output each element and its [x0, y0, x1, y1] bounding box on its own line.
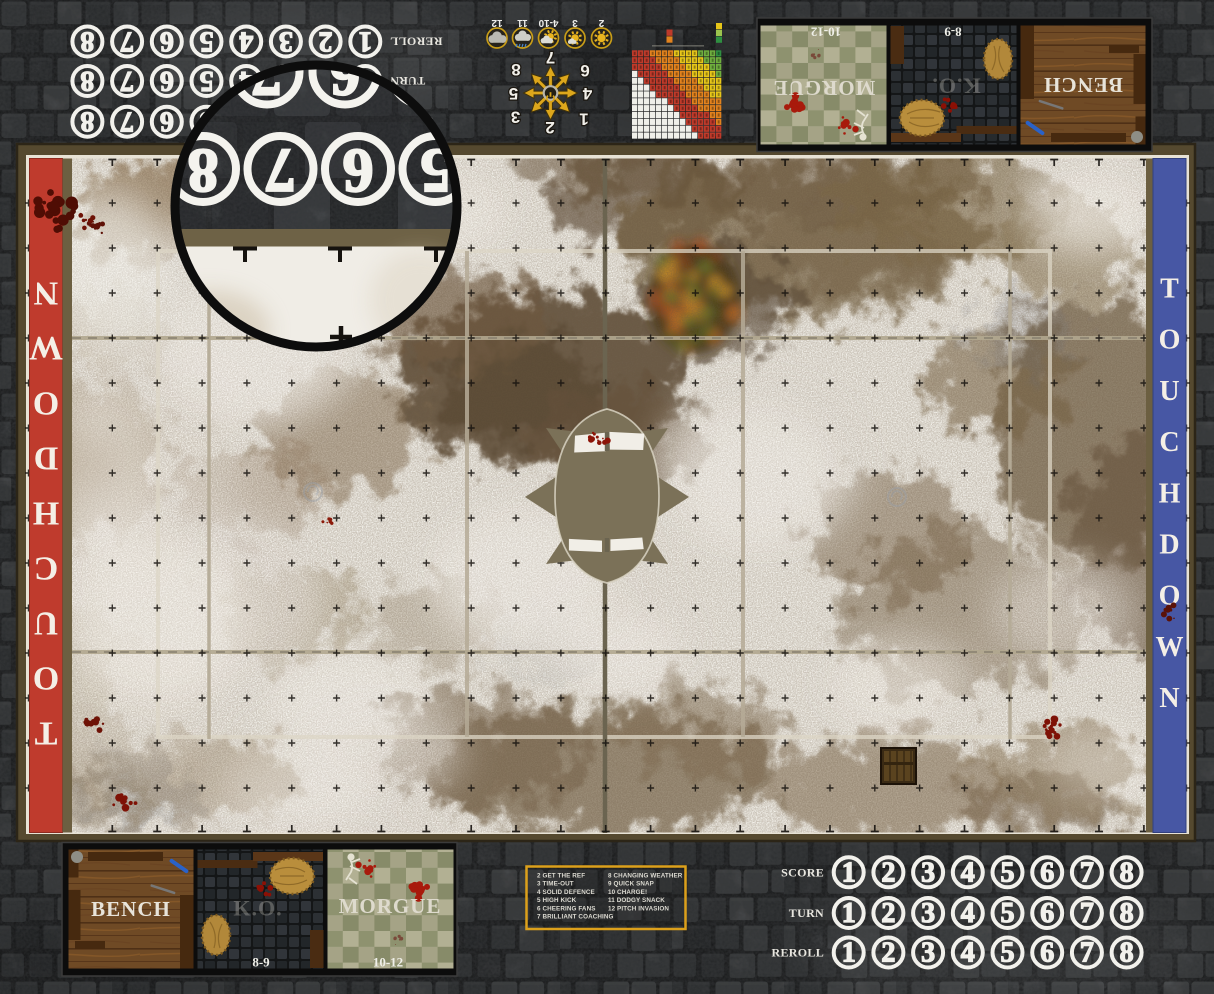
svg-text:3: 3 [921, 857, 935, 888]
svg-text:12 PITCH INVASION: 12 PITCH INVASION [608, 905, 669, 912]
svg-text:7: 7 [1080, 938, 1094, 969]
svg-text:N: N [1159, 683, 1179, 714]
svg-text:1: 1 [842, 857, 856, 888]
svg-text:6: 6 [343, 136, 374, 204]
svg-text:BENCH: BENCH [91, 897, 171, 921]
svg-text:5: 5 [1001, 898, 1015, 929]
svg-text:D: D [1159, 530, 1179, 561]
svg-text:8: 8 [1120, 857, 1134, 888]
svg-text:1: 1 [842, 938, 856, 969]
svg-text:U: U [1159, 376, 1179, 407]
svg-text:4 SOLID DEFENCE: 4 SOLID DEFENCE [537, 889, 595, 896]
svg-text:N: N [33, 275, 58, 312]
svg-text:4: 4 [961, 857, 975, 888]
svg-text:O: O [33, 660, 59, 697]
svg-text:7: 7 [265, 136, 296, 204]
svg-text:6: 6 [1040, 898, 1054, 929]
svg-text:10-12: 10-12 [373, 955, 403, 970]
svg-text:REROLL: REROLL [772, 946, 824, 960]
svg-text:C: C [34, 550, 59, 587]
svg-text:6: 6 [580, 61, 589, 80]
svg-text:11 DODGY SNACK: 11 DODGY SNACK [608, 897, 665, 904]
svg-text:2: 2 [598, 17, 604, 28]
svg-text:U: U [34, 605, 59, 642]
svg-text:8: 8 [1120, 938, 1134, 969]
svg-text:5 HIGH KICK: 5 HIGH KICK [537, 897, 577, 904]
svg-text:MORGUE: MORGUE [339, 894, 442, 918]
svg-text:H: H [33, 495, 59, 532]
svg-text:3: 3 [921, 938, 935, 969]
svg-text:5: 5 [509, 84, 518, 103]
svg-text:C: C [1159, 427, 1179, 458]
svg-text:4: 4 [961, 898, 975, 929]
svg-text:3: 3 [921, 898, 935, 929]
svg-text:7: 7 [546, 48, 555, 67]
svg-text:O: O [1159, 325, 1181, 356]
svg-text:8: 8 [1120, 898, 1134, 929]
svg-text:SCORE: SCORE [781, 865, 824, 879]
svg-text:3 TIME-OUT: 3 TIME-OUT [537, 881, 574, 888]
svg-text:6: 6 [1040, 857, 1054, 888]
svg-text:H: H [1159, 478, 1181, 509]
svg-text:7: 7 [1080, 857, 1094, 888]
svg-text:T: T [34, 715, 57, 752]
svg-text:10 CHARGE!: 10 CHARGE! [608, 889, 647, 896]
svg-text:2 GET THE REF: 2 GET THE REF [537, 873, 585, 880]
svg-text:1: 1 [842, 898, 856, 929]
svg-text:3: 3 [572, 17, 578, 28]
svg-text:T: T [1160, 274, 1179, 305]
svg-text:3: 3 [511, 108, 520, 127]
svg-text:8 CHANGING WEATHER: 8 CHANGING WEATHER [608, 873, 683, 880]
svg-text:5: 5 [1001, 857, 1015, 888]
svg-text:8-9: 8-9 [252, 955, 270, 970]
svg-text:9 QUICK SNAP: 9 QUICK SNAP [608, 881, 654, 888]
svg-text:2: 2 [881, 857, 895, 888]
svg-text:7 BRILLIANT COACHING: 7 BRILLIANT COACHING [537, 914, 614, 921]
svg-text:6 CHEERING FANS: 6 CHEERING FANS [537, 905, 596, 912]
svg-text:4-10: 4-10 [538, 17, 558, 28]
svg-text:4: 4 [961, 938, 975, 969]
svg-text:W: W [1156, 632, 1184, 663]
svg-text:K.O.: K.O. [233, 896, 282, 921]
svg-text:2: 2 [545, 118, 554, 137]
svg-text:D: D [34, 440, 59, 477]
svg-text:7: 7 [1080, 898, 1094, 929]
svg-text:W: W [29, 330, 63, 367]
svg-text:O: O [33, 385, 59, 422]
svg-text:12: 12 [491, 17, 503, 28]
svg-text:TURN: TURN [789, 906, 824, 920]
svg-text:11: 11 [517, 17, 528, 28]
svg-text:4: 4 [582, 84, 592, 103]
svg-text:2: 2 [881, 938, 895, 969]
svg-text:8: 8 [511, 60, 520, 79]
svg-text:5: 5 [1001, 938, 1015, 969]
svg-text:2: 2 [881, 898, 895, 929]
svg-text:6: 6 [1040, 938, 1054, 969]
svg-text:1: 1 [579, 110, 588, 129]
